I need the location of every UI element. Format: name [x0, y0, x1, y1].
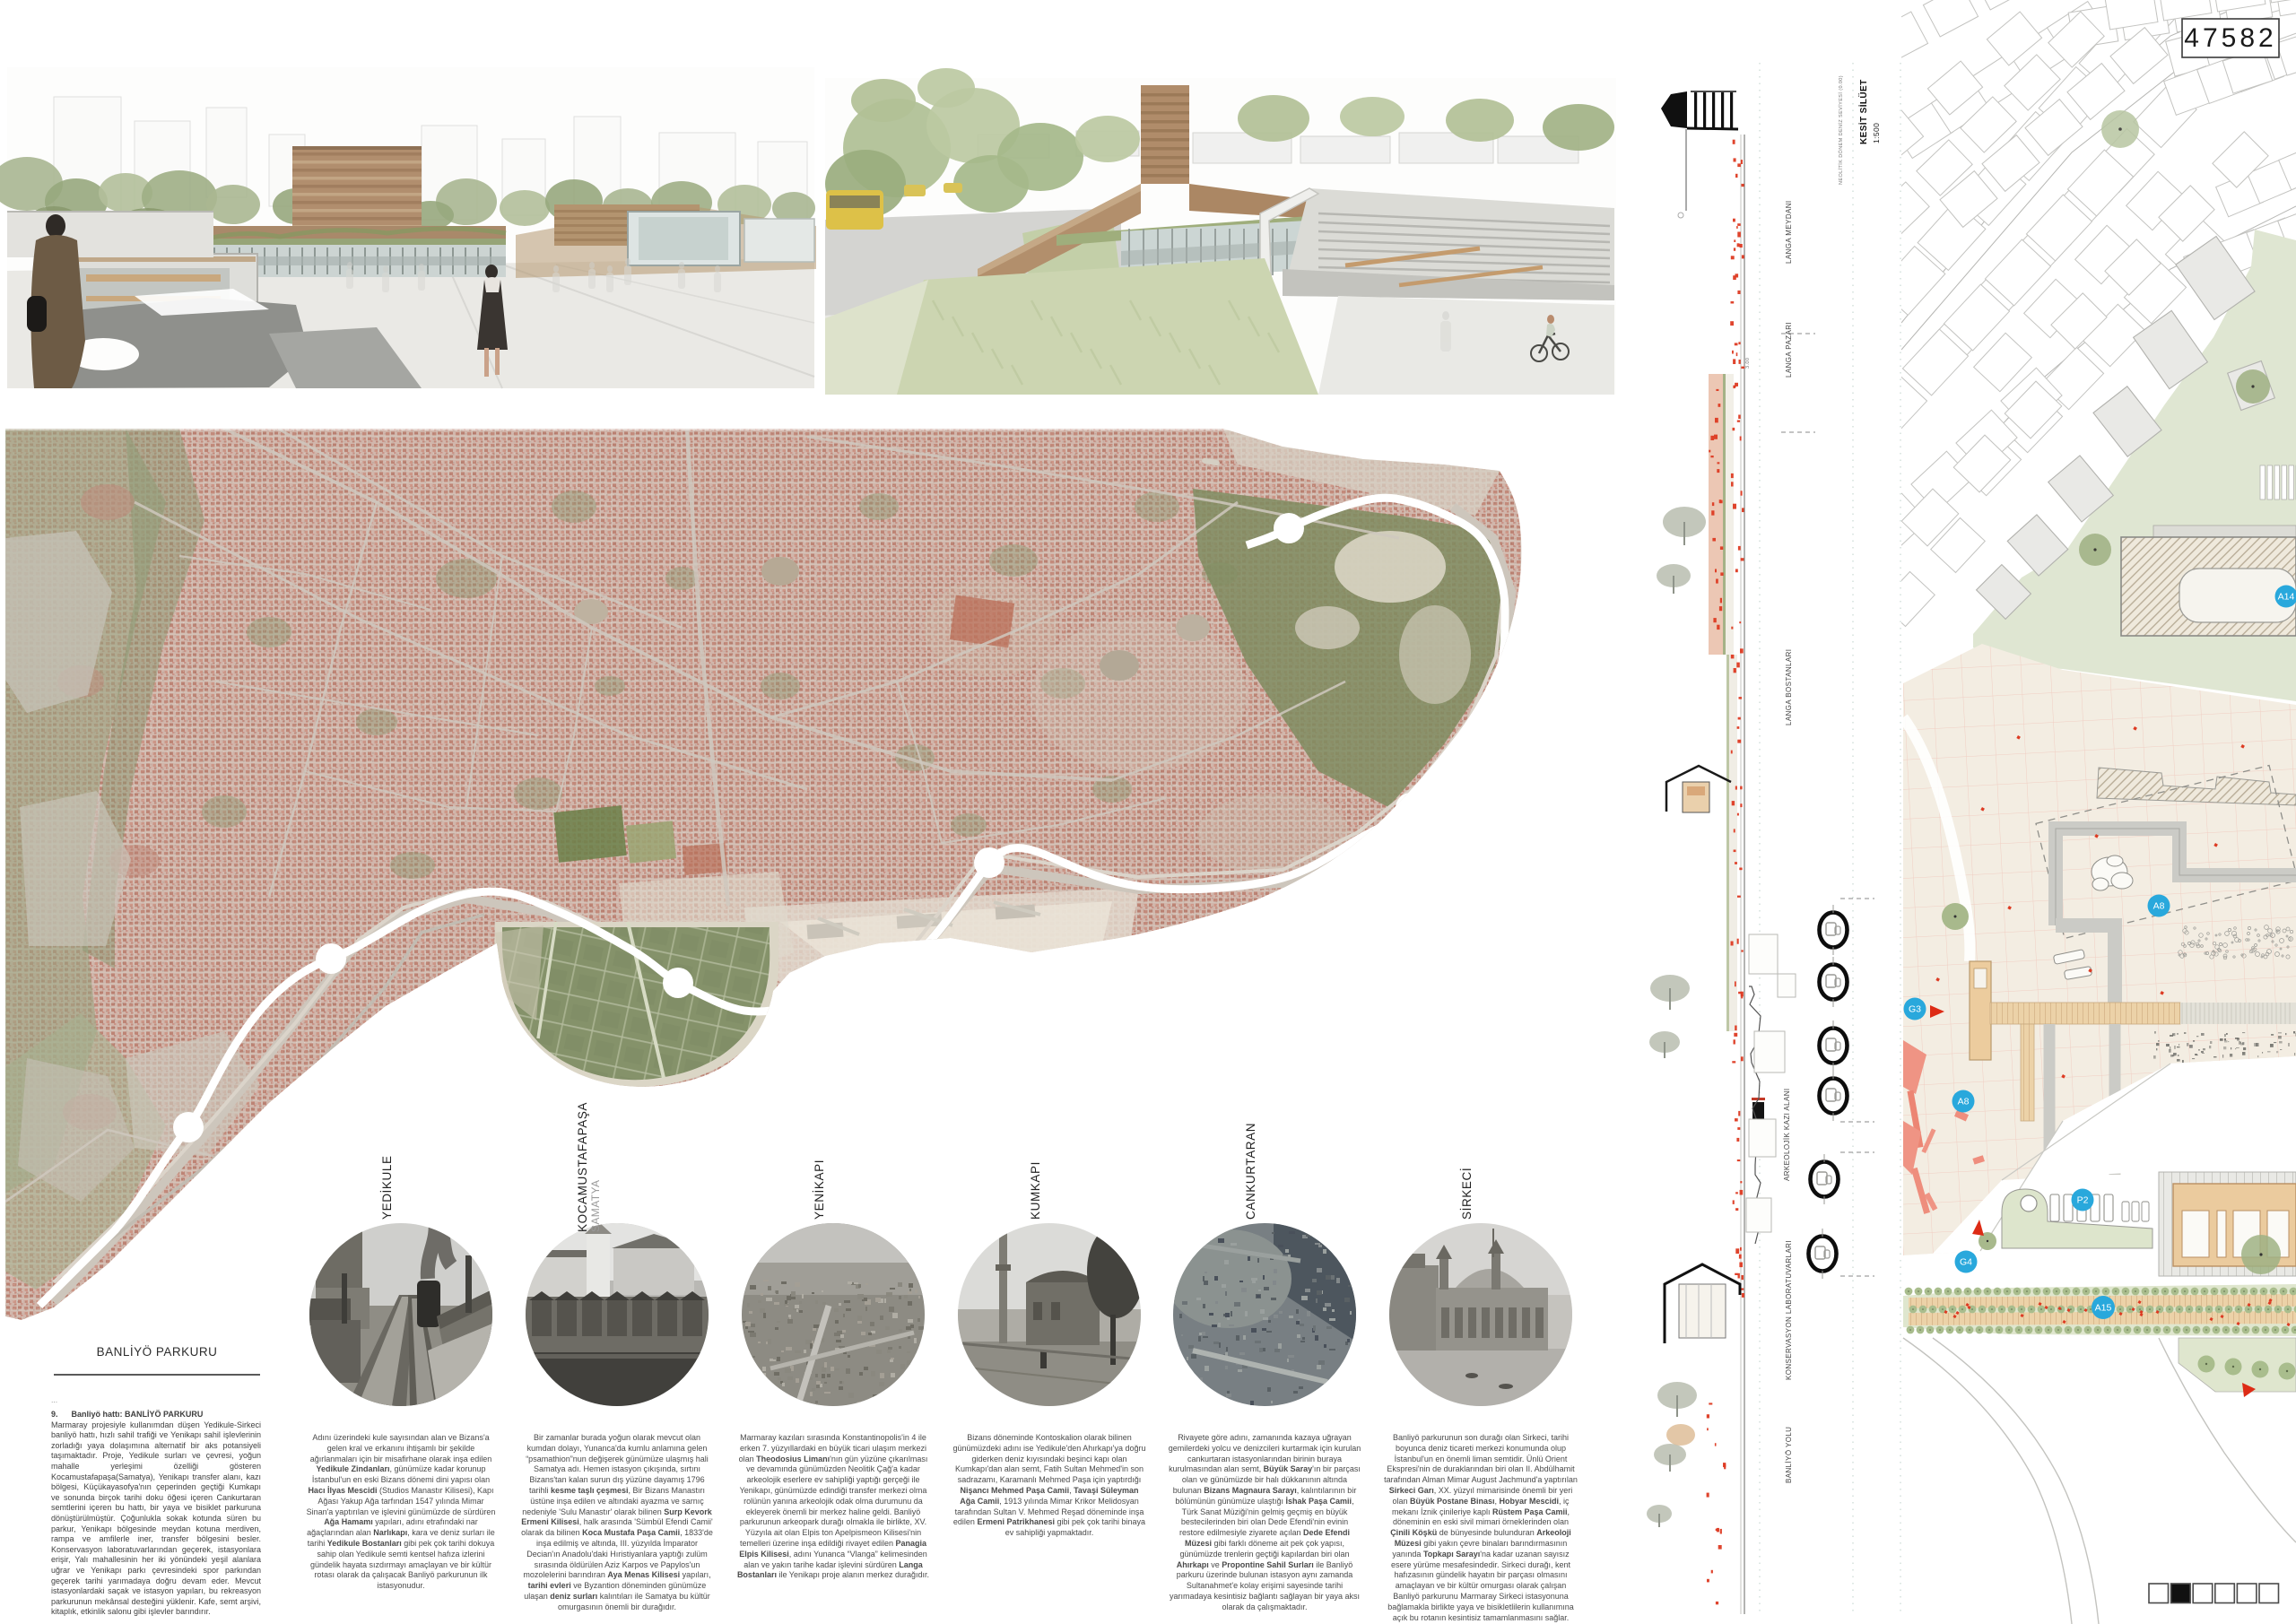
svg-text:A14: A14	[2278, 592, 2295, 603]
svg-text:P2: P2	[2077, 1195, 2089, 1206]
svg-text:G3: G3	[1909, 1004, 1921, 1015]
svg-text:A8: A8	[2153, 901, 2165, 912]
svg-text:47582: 47582	[2184, 23, 2276, 53]
svg-text:A15: A15	[2095, 1303, 2112, 1314]
svg-text:A8: A8	[1958, 1097, 1970, 1107]
svg-text:G4: G4	[1960, 1257, 1972, 1268]
